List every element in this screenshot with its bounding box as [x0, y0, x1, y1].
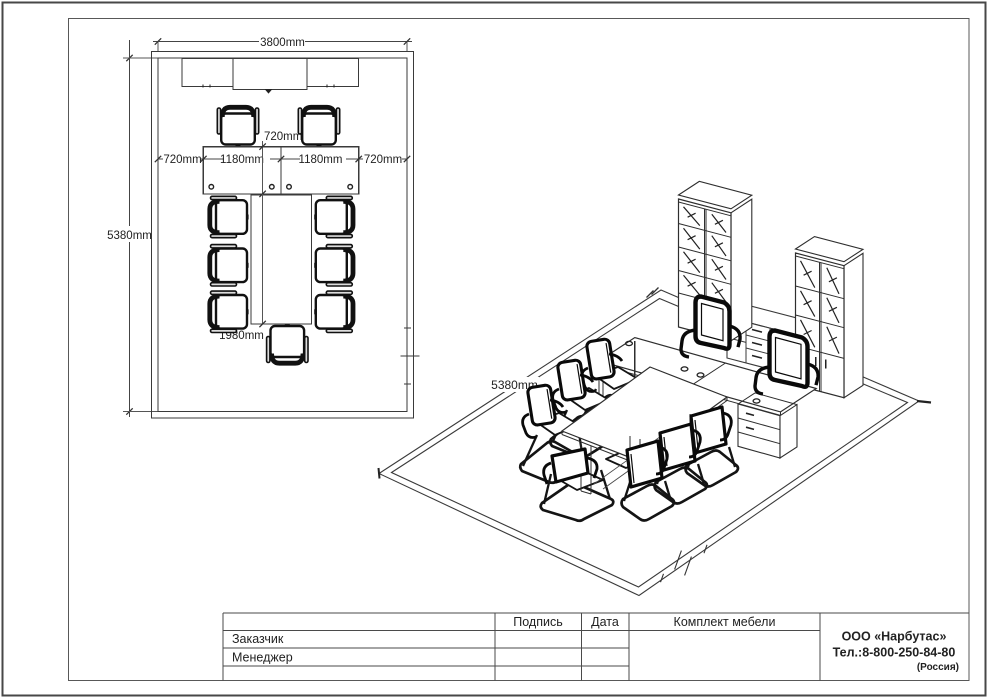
- svg-text:720mm: 720mm: [264, 131, 302, 143]
- svg-text:ООО «Нарбутас»: ООО «Нарбутас»: [842, 630, 947, 644]
- svg-text:1180mm: 1180mm: [299, 154, 343, 166]
- svg-text:Подпись: Подпись: [513, 615, 562, 629]
- svg-text:1180mm: 1180mm: [220, 154, 264, 166]
- svg-text:720mm: 720mm: [163, 154, 201, 166]
- svg-text:Менеджер: Менеджер: [232, 651, 293, 665]
- svg-text:Тел.:8-800-250-84-80: Тел.:8-800-250-84-80: [833, 646, 956, 660]
- svg-text:Комплект мебели: Комплект мебели: [674, 615, 776, 629]
- svg-text:Дата: Дата: [591, 615, 619, 629]
- svg-text:5380mm: 5380mm: [107, 230, 152, 242]
- svg-text:Заказчик: Заказчик: [232, 632, 284, 646]
- svg-text:720mm: 720mm: [364, 154, 402, 166]
- svg-text:3800mm: 3800mm: [260, 37, 305, 49]
- svg-text:(Россия): (Россия): [917, 662, 959, 673]
